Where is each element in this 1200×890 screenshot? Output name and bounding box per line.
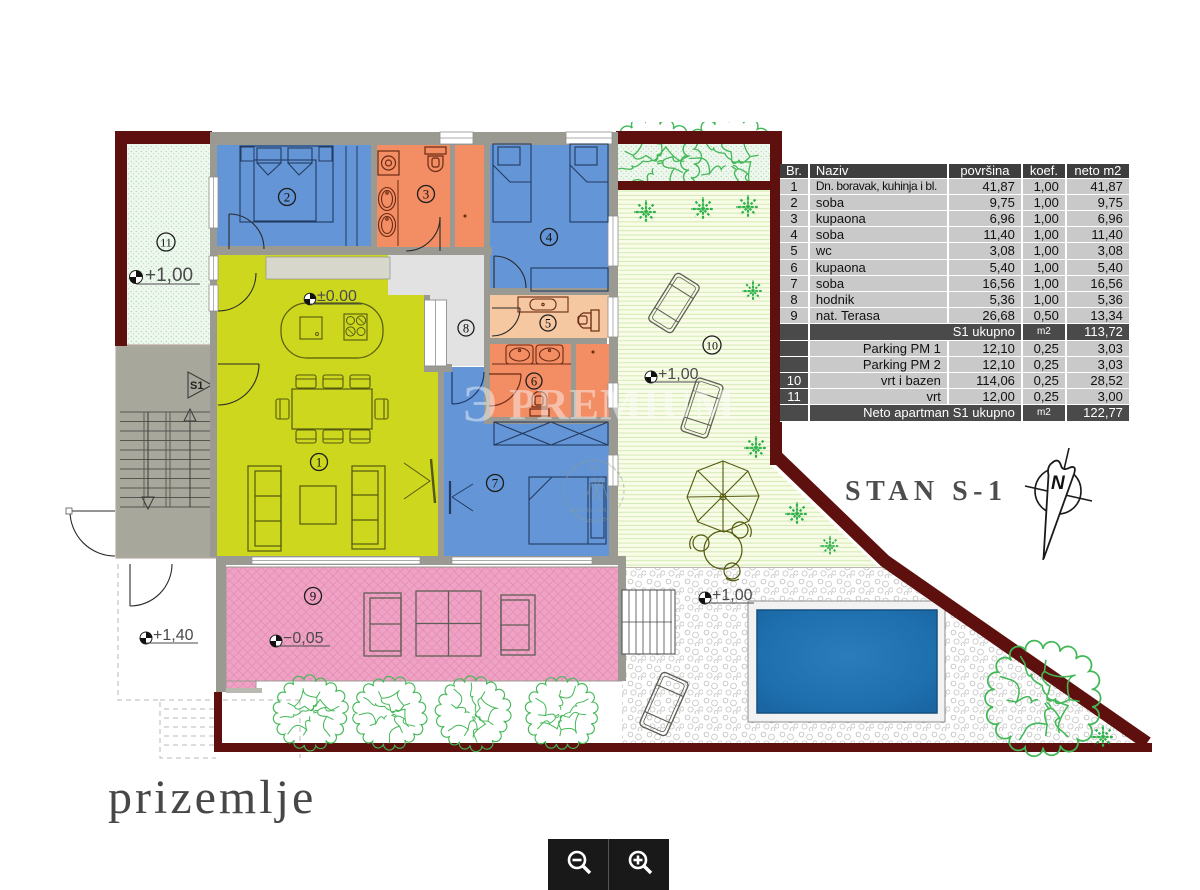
svg-text:+1,40: +1,40 [153, 627, 194, 644]
svg-text:3: 3 [423, 187, 430, 202]
svg-text:10: 10 [706, 339, 718, 353]
svg-text:PREMIUM: PREMIUM [509, 380, 736, 429]
svg-text:+1,00: +1,00 [712, 587, 753, 604]
svg-text:−0,05: −0,05 [283, 630, 324, 647]
svg-text:2020: 2020 [587, 466, 601, 472]
svg-text:9: 9 [310, 589, 317, 604]
svg-text:1: 1 [316, 455, 323, 470]
svg-text:±0.00: ±0.00 [317, 288, 357, 305]
svg-text:NOVITELI CENTER: NOVITELI CENTER [572, 508, 617, 514]
svg-text:2: 2 [284, 190, 291, 205]
svg-text:+1,00: +1,00 [145, 265, 193, 286]
svg-text:4: 4 [546, 230, 553, 245]
svg-text:N: N [1051, 473, 1066, 494]
svg-text:Э: Э [462, 376, 497, 433]
svg-text:11: 11 [160, 236, 172, 250]
svg-text:8: 8 [463, 322, 469, 336]
svg-text:5: 5 [545, 317, 551, 331]
svg-text:7: 7 [492, 476, 499, 491]
svg-text:S1: S1 [190, 380, 203, 392]
